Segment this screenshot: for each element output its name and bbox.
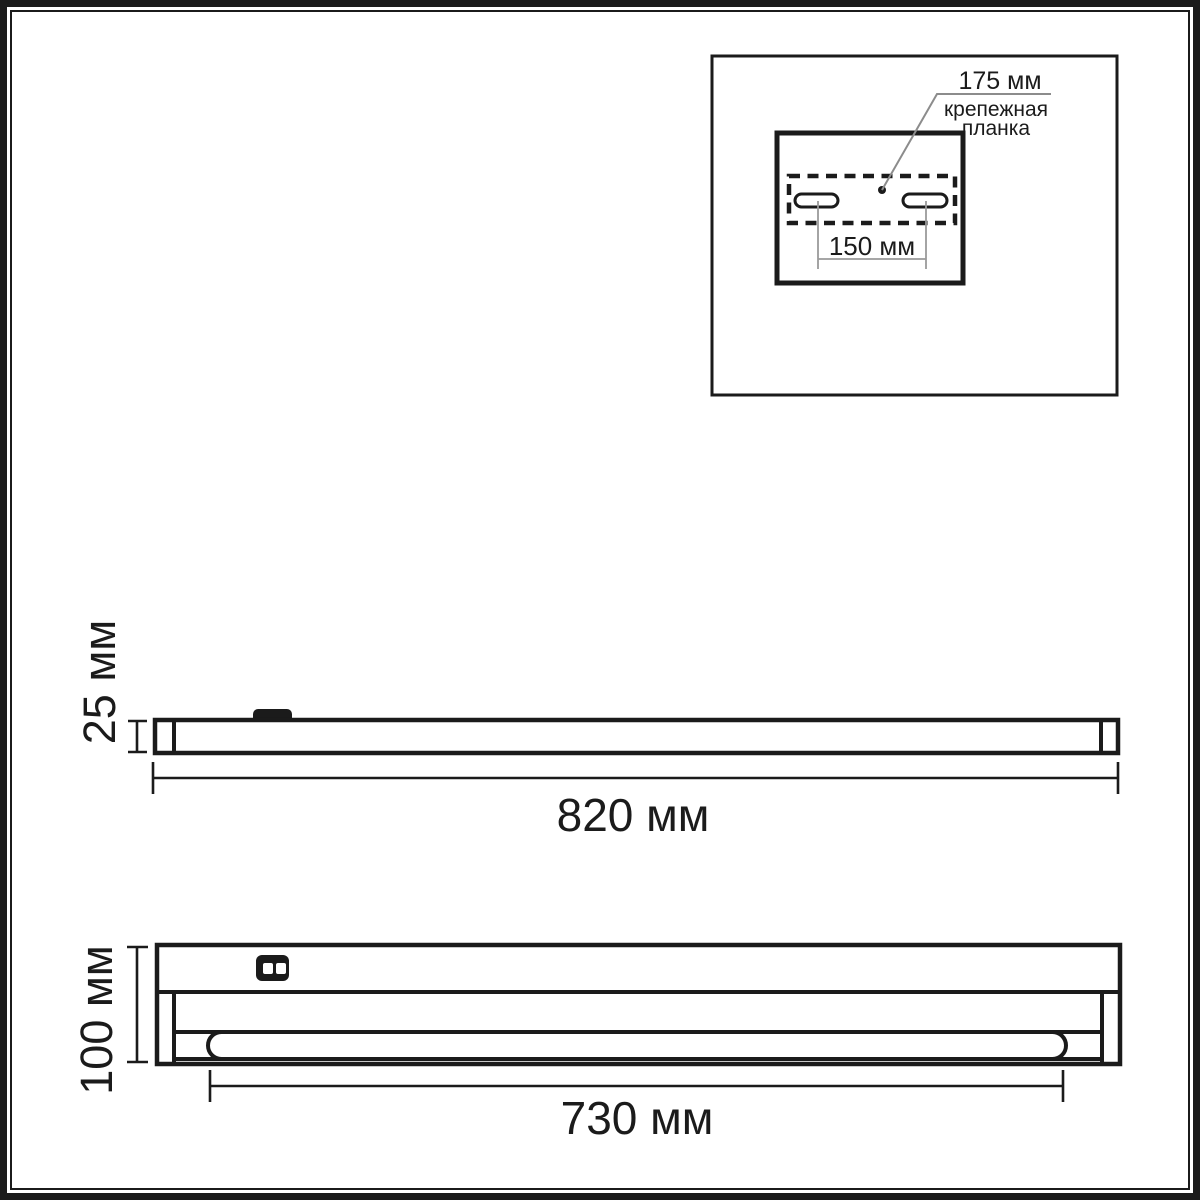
inset-callout-value-label: 175 мм: [935, 67, 1065, 96]
height-dimension-25: [128, 721, 147, 752]
lamp-tube: [208, 1032, 1066, 1059]
technical-drawing-page: { "colors": { "line": "#1b1b1b", "leader…: [0, 0, 1200, 1200]
front-view: [127, 945, 1120, 1102]
height-dimension-100: [127, 947, 148, 1062]
side-view-body: [155, 720, 1118, 753]
power-switch-icon: [256, 955, 289, 981]
mounting-slot-right: [903, 194, 947, 207]
slot-spacing-label: 150 мм: [812, 231, 932, 262]
mounting-bracket-dashed-outline: [789, 176, 955, 223]
side-height-label: 25 мм: [77, 602, 123, 762]
side-view: [128, 709, 1118, 794]
luminaire-dimension-drawing: [0, 0, 1200, 1200]
front-height-label: 100 мм: [74, 930, 120, 1110]
lamp-length-label: 730 мм: [487, 1091, 787, 1145]
mounting-slot-left: [795, 194, 838, 207]
side-length-label: 820 мм: [483, 788, 783, 842]
inset-callout-name-label: крепежная планка: [930, 100, 1062, 139]
